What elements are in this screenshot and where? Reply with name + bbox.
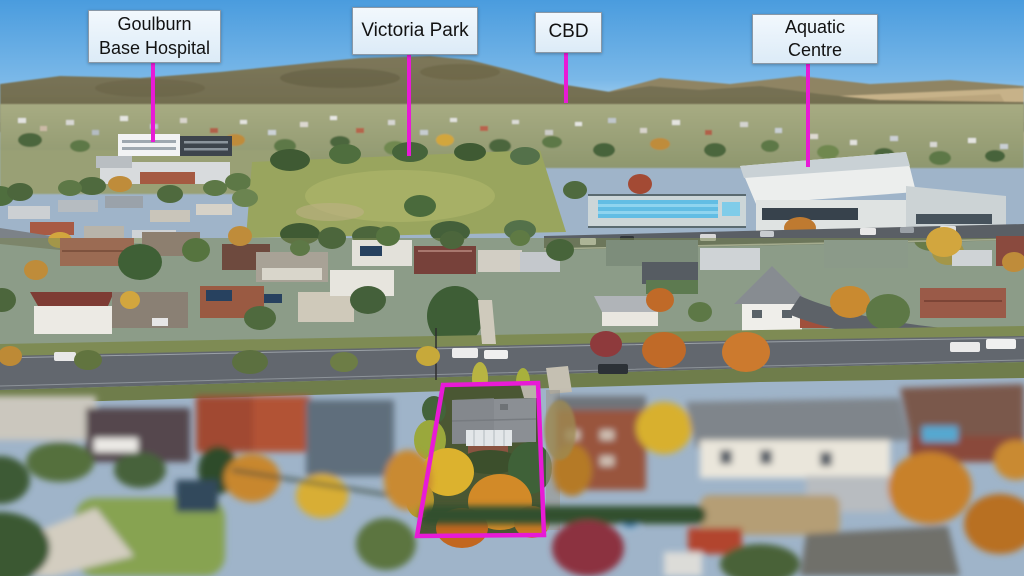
annotation-overlay <box>0 0 1024 576</box>
label-line: Base Hospital <box>99 37 210 60</box>
label-line: Victoria Park <box>361 19 468 44</box>
label-line: Aquatic <box>785 16 845 39</box>
label-line: CBD <box>548 20 588 45</box>
label-cbd: CBD <box>535 12 602 53</box>
label-line: Goulburn <box>117 13 191 36</box>
label-goulburn-base-hospital: Goulburn Base Hospital <box>88 10 221 63</box>
label-victoria-park: Victoria Park <box>352 7 478 55</box>
aerial-photo: Goulburn Base Hospital Victoria Park CBD… <box>0 0 1024 576</box>
label-line: Centre <box>788 39 842 62</box>
label-aquatic-centre: Aquatic Centre <box>752 14 878 64</box>
property-boundary <box>417 383 544 536</box>
